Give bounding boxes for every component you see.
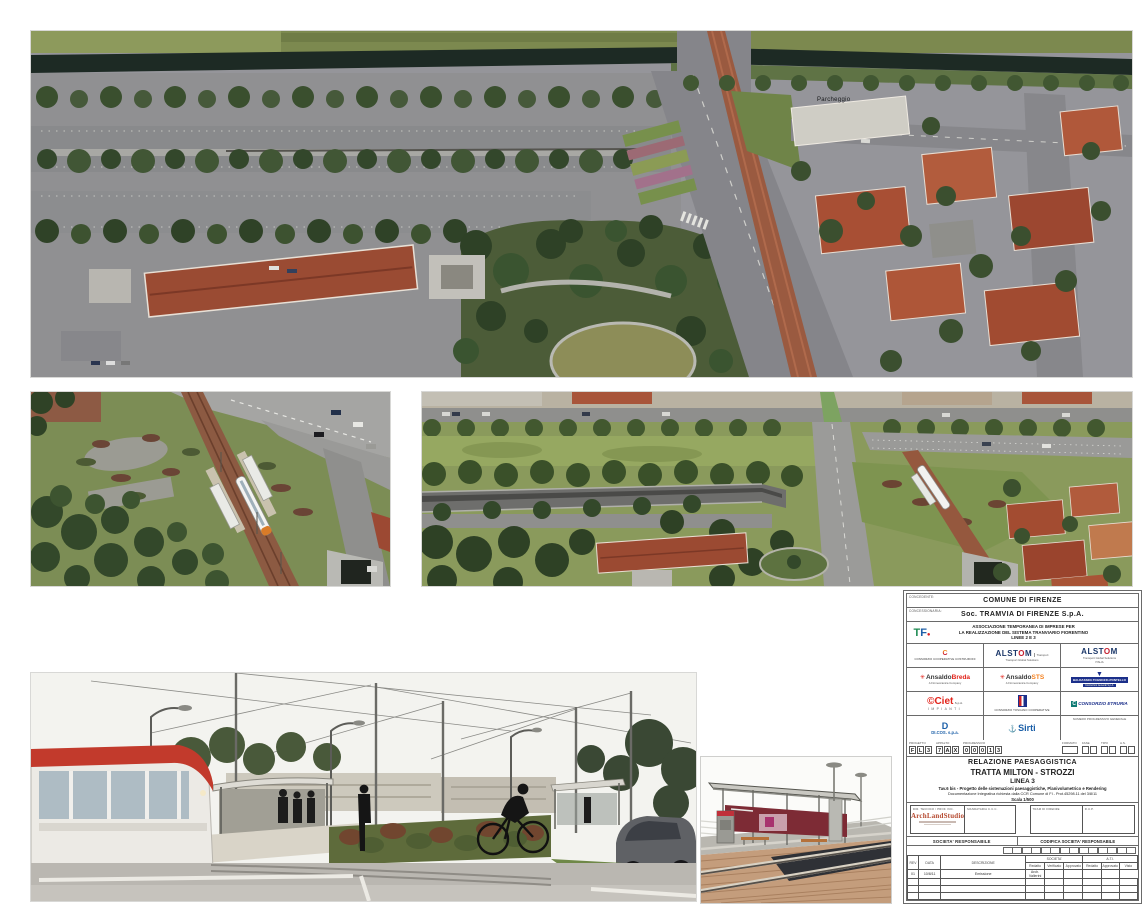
code-appalto: APPALTO 7AX xyxy=(936,741,960,754)
logo-ansaldosts: ✳AnsaldoSTS A Finmeccanica Company xyxy=(984,668,1061,692)
archlandstudio-logo: ArchLandStudio xyxy=(911,812,964,820)
revision-row-1: 01 10/8/11 Emissione Arch. Vallerini xyxy=(908,870,1138,879)
signature-box-left: DIR. TECNICO / PROF. INC. ArchLandStudio… xyxy=(910,805,1016,834)
societa-header: SOCIETA' xyxy=(1026,856,1083,863)
numero-progressivo-cell: NUMERO PROGRESSIVO GENERALE xyxy=(1061,716,1138,740)
render-avenue-aerial-image xyxy=(421,391,1133,587)
render-junction-aerial-image xyxy=(30,391,391,587)
sirti-icon: ⚓ xyxy=(1008,726,1017,733)
concedente-value: COMUNE DI FIRENZE xyxy=(907,594,1138,607)
map-label-parcheggio: Parcheggio xyxy=(817,97,850,103)
logo-alstom-transport: ALSTOM Transport Transport Global Soluti… xyxy=(984,644,1061,668)
tav-description: Tav.6 bis - Progetto delle sistemazioni … xyxy=(907,786,1138,791)
small-building xyxy=(89,269,131,303)
data-header: DATA xyxy=(919,856,941,870)
logo-ccc: C CONSORZIO COOPERATIVE COSTRUZIONI xyxy=(907,644,984,668)
drawing-title-row: RELAZIONE PAESAGGISTICA TRATTA MILTON - … xyxy=(907,757,1138,803)
top-aerial-photoplan-image: Parcheggio xyxy=(30,30,1133,378)
sun-icon: ✳ xyxy=(1000,675,1005,681)
societa-row: SOCIETA' RESPONSABILE CODIFICA SOCIETA' … xyxy=(907,837,1138,846)
societa-responsabile-label: SOCIETA' RESPONSABILE xyxy=(907,837,1018,845)
tratta: TRATTA MILTON - STROZZI xyxy=(907,768,1138,777)
code-progetto: PROGETTO FL3 xyxy=(909,741,933,754)
revision-row-empty xyxy=(908,886,1138,893)
code-progressivo: PROGRESSIVO 00013 xyxy=(963,741,1003,754)
ccc-flame-icon: C xyxy=(942,650,947,657)
revision-row-empty xyxy=(908,879,1138,886)
codifica-cells xyxy=(907,846,1138,855)
rev-header: REV xyxy=(908,856,919,870)
ctc-flag-icon xyxy=(1018,695,1027,707)
concessionaria-row: CONCESSIONARIA: Soc. TRAMVIA DI FIRENZE … xyxy=(907,608,1138,622)
code-tipo: TIPO xyxy=(1101,741,1117,754)
logo-ciet: ©Ciet S.p.A. IMPIANTI xyxy=(907,692,984,716)
concedente-row: CONCEDENTE: COMUNE DI FIRENZE xyxy=(907,594,1138,608)
ati-header: A.T.I. xyxy=(1083,856,1138,863)
codes-row: PROGETTO FL3 APPALTO 7AX PROGRESSIVO 000… xyxy=(907,740,1138,757)
dir-tecnico-cell: DIR. TECNICO / PROF. INC. ArchLandStudio xyxy=(911,806,965,833)
code-formato: FORMATO xyxy=(1062,741,1079,754)
mandataria-cell: MANDATARIA C.C.C. xyxy=(965,806,1014,833)
logo-consorzio-etruria: CCONSORZIO ETRURIA xyxy=(1061,692,1138,716)
doc-integrativa: Documentazione Integrativa richiesta dal… xyxy=(907,792,1138,796)
logo-ctc: CONSORZIO TOSCANO COOPERATIVE xyxy=(984,692,1061,716)
scala: Scala 1/500 xyxy=(907,797,1138,802)
concessionaria-label: CONCESSIONARIA: xyxy=(909,609,942,613)
logo-dicos: D DI.COS. s.p.a. xyxy=(907,716,984,740)
ati-text: ASSOCIAZIONE TEMPORANEA DI IMPRESE PER L… xyxy=(937,624,1138,641)
code-as: A.S. xyxy=(1120,741,1136,754)
tram-di-firenze-cell: TRAM DI FIRENZE xyxy=(1031,806,1083,833)
street-level-render-image xyxy=(30,672,697,902)
tram-vehicle xyxy=(31,745,213,873)
sun-icon: ✳ xyxy=(920,675,925,681)
top-aerial-graphic xyxy=(31,31,1132,377)
signature-box-right: TRAM DI FIRENZE R.U.P. xyxy=(1030,805,1136,834)
tram-stop-photo-image xyxy=(700,756,892,904)
ticket-machine xyxy=(717,811,734,843)
etruria-c-icon: C xyxy=(1071,701,1077,707)
logo-ansaldobreda: ✳AnsaldoBreda A Finmeccanica Company xyxy=(907,668,984,692)
revision-table: REV DATA DESCRIZIONE SOCIETA' A.T.I. Red… xyxy=(907,855,1138,900)
companies-logo-grid: C CONSORZIO COOPERATIVE COSTRUZIONI ALST… xyxy=(907,644,1138,740)
linea: LINEA 3 xyxy=(907,778,1138,785)
descrizione-header: DESCRIZIONE xyxy=(941,856,1026,870)
people-silhouettes xyxy=(278,789,315,823)
codifica-label: CODIFICA SOCIETA' RESPONSABILE xyxy=(1018,837,1138,845)
logo-alstom-italia: ALSTOM Transport Global Solutions ITALIA xyxy=(1061,644,1138,668)
drawing-sheet: Parcheggio xyxy=(0,0,1145,915)
ati-row: TF● ASSOCIAZIONE TEMPORANEA DI IMPRESE P… xyxy=(907,622,1138,644)
tramvia-firenze-logo: TF● xyxy=(907,627,937,639)
logo-sirti: ⚓Sirti xyxy=(984,716,1061,740)
title-block: CONCEDENTE: COMUNE DI FIRENZE CONCESSION… xyxy=(903,590,1142,904)
totem xyxy=(829,799,842,841)
doc-type: RELAZIONE PAESAGGISTICA xyxy=(907,759,1138,766)
logo-btp: ▼ BALDASSINI-TOGNOZZI-PONTELLO Costruzio… xyxy=(1061,668,1138,692)
code-fase: FASE xyxy=(1082,741,1098,754)
concedente-label: CONCEDENTE: xyxy=(909,595,934,599)
rup-cell: R.U.P. xyxy=(1083,806,1134,833)
signatures-row: DIR. TECNICO / PROF. INC. ArchLandStudio… xyxy=(907,803,1138,837)
revision-row-empty xyxy=(908,893,1138,900)
